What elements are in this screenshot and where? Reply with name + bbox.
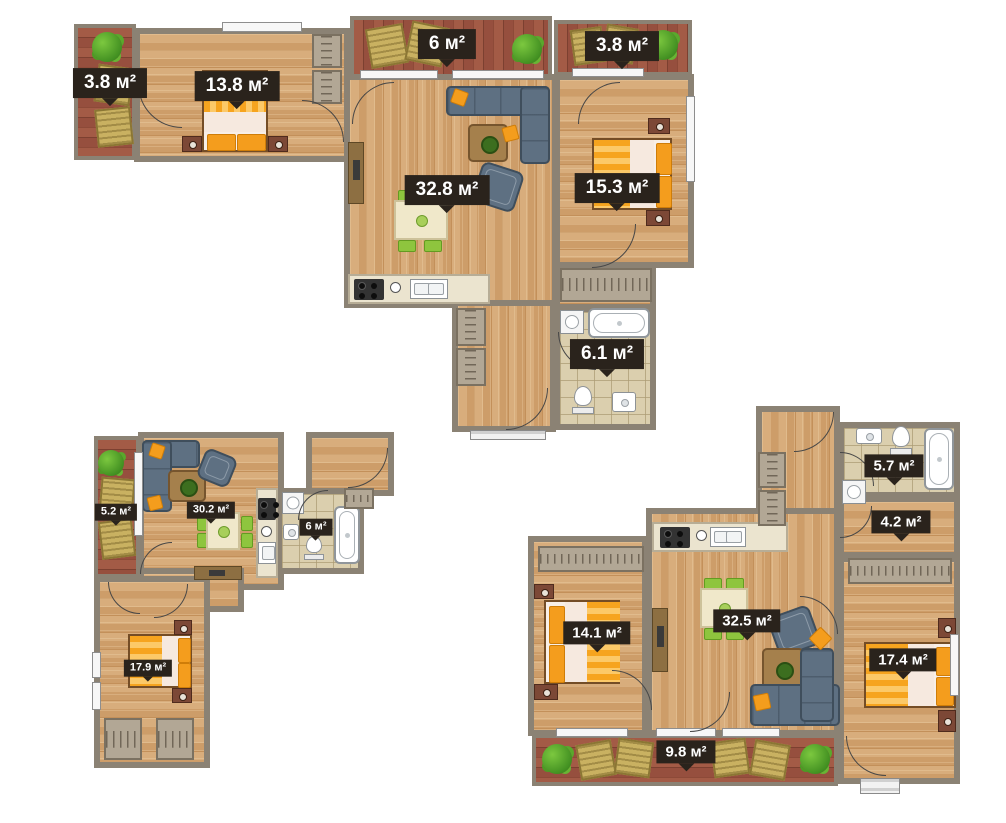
room-area-label: 32.8 м² — [405, 175, 490, 205]
wardrobe — [456, 348, 486, 386]
wardrobe-row — [848, 558, 952, 584]
nightstand — [534, 584, 554, 599]
window — [92, 682, 101, 710]
room-area-label: 17.4 м² — [869, 648, 936, 671]
wardrobe — [312, 34, 342, 68]
wardrobe — [104, 718, 142, 760]
chair — [241, 533, 253, 548]
window — [656, 728, 716, 737]
kitchen-sink — [710, 527, 746, 547]
plant — [512, 34, 542, 64]
bathroom-sink — [612, 392, 636, 412]
bathtub — [334, 506, 360, 564]
window — [452, 70, 544, 79]
window — [360, 70, 438, 79]
wardrobe — [156, 718, 194, 760]
deck-chair — [614, 738, 655, 779]
plant — [542, 744, 572, 774]
chair — [398, 240, 416, 252]
tv-stand — [652, 608, 668, 672]
wardrobe-row — [560, 268, 652, 302]
window — [92, 652, 101, 678]
window — [572, 68, 644, 77]
plant — [92, 32, 122, 62]
kitchen-sink — [410, 279, 448, 299]
deck-chair — [94, 106, 134, 148]
nightstand — [182, 136, 202, 152]
room-area-label: 5.2 м² — [95, 504, 137, 521]
chair — [241, 516, 253, 531]
nightstand — [646, 210, 670, 226]
room-area-label: 3.8 м² — [73, 68, 147, 98]
room-area-label: 9.8 м² — [656, 740, 715, 763]
room-area-label: 6.1 м² — [570, 339, 644, 369]
plant — [98, 450, 124, 476]
room-area-label: 14.1 м² — [563, 621, 630, 644]
wardrobe — [758, 490, 786, 526]
wardrobe — [758, 452, 786, 488]
entrance-step — [470, 430, 546, 440]
corner-sofa — [520, 86, 550, 164]
window — [950, 634, 959, 696]
room-area-label: 3.8 м² — [585, 31, 659, 61]
kitchen-sink — [258, 542, 276, 564]
stove — [660, 527, 690, 548]
room-area-label: 13.8 м² — [195, 71, 280, 101]
kitchen-item — [390, 282, 401, 293]
window — [686, 96, 695, 182]
room-area-label: 6 м² — [418, 29, 476, 59]
stove — [258, 498, 276, 520]
room-area-label: 15.3 м² — [575, 173, 660, 203]
nightstand — [174, 620, 192, 635]
window — [556, 728, 628, 737]
toilet — [890, 426, 912, 456]
nightstand — [268, 136, 288, 152]
deck-chair — [710, 738, 751, 779]
nightstand — [648, 118, 670, 134]
kitchen-item — [261, 526, 272, 537]
washing-machine — [560, 310, 584, 334]
bathroom-sink — [283, 524, 299, 540]
room-area-label: 4.2 м² — [871, 510, 930, 533]
window — [134, 452, 143, 536]
room-area-label: 32.5 м² — [713, 609, 780, 632]
corner-sofa — [800, 648, 834, 722]
chair — [424, 240, 442, 252]
toilet — [572, 386, 594, 414]
wardrobe — [312, 70, 342, 104]
tv-stand — [348, 142, 364, 204]
nightstand — [534, 684, 558, 700]
room-area-label: 30.2 м² — [187, 502, 235, 519]
deck-chair — [365, 23, 409, 69]
nightstand — [172, 688, 192, 703]
wardrobe-row — [538, 546, 644, 572]
tv-stand — [194, 566, 242, 580]
entrance-step — [860, 778, 900, 794]
room-area-label: 6 м² — [300, 519, 333, 536]
stove — [354, 279, 384, 300]
pillow — [753, 693, 772, 712]
window — [222, 22, 302, 32]
wardrobe — [344, 488, 374, 509]
room-area-label: 17.9 м² — [124, 660, 172, 677]
bathtub — [924, 428, 954, 490]
deck-chair — [575, 739, 617, 781]
bathtub — [588, 308, 650, 338]
floor-plan-canvas: 3.8 м² 13.8 м² 6 м² 3.8 м² 32.8 м² 15.3 … — [0, 0, 1006, 823]
room-area-label: 5.7 м² — [864, 454, 923, 477]
plant — [800, 744, 830, 774]
nightstand — [938, 710, 956, 732]
wardrobe — [456, 308, 486, 346]
window — [722, 728, 780, 737]
kitchen-item — [696, 530, 707, 541]
deck-chair — [749, 739, 791, 781]
bathroom-sink — [856, 428, 882, 444]
